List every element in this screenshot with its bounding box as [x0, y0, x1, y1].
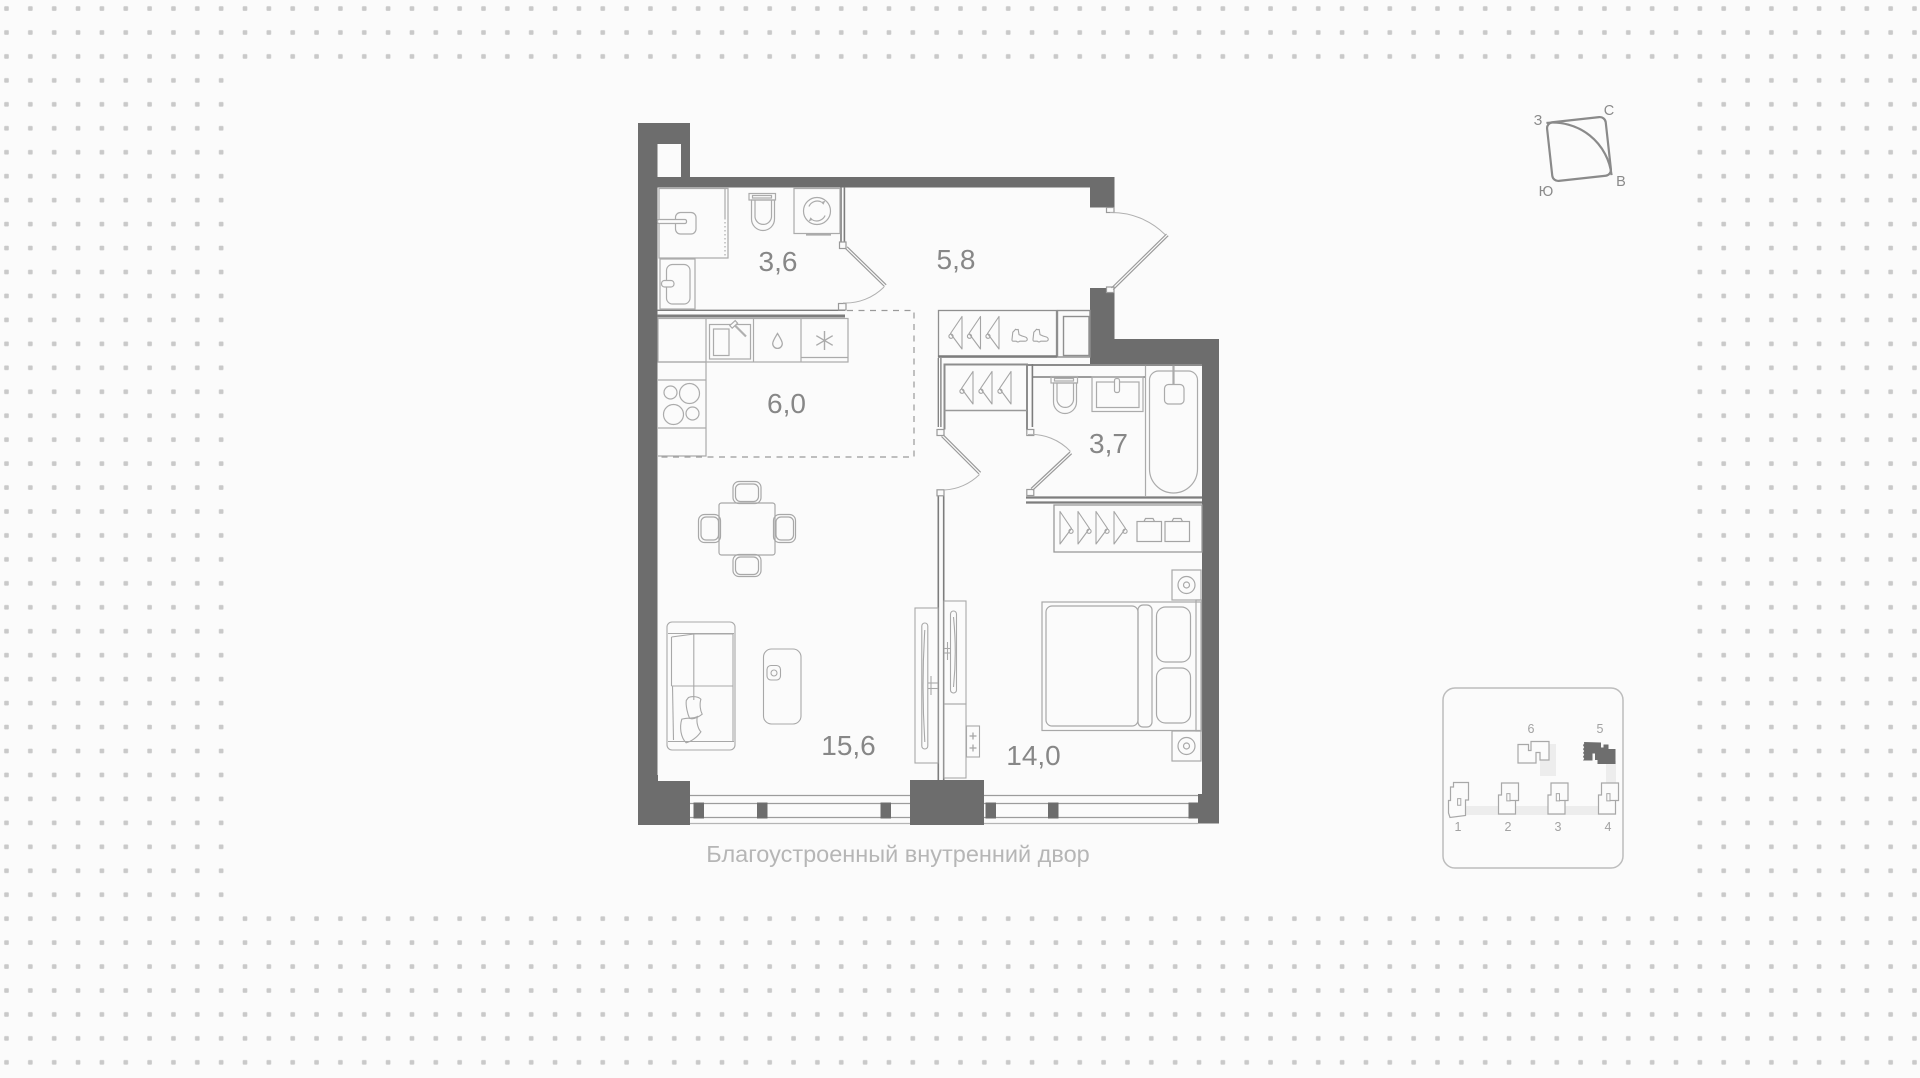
- svg-text:Благоустроенный внутренний дво: Благоустроенный внутренний двор: [706, 841, 1089, 867]
- svg-text:15,6: 15,6: [821, 730, 876, 761]
- svg-text:3: 3: [1555, 820, 1562, 834]
- svg-text:14,0: 14,0: [1006, 740, 1061, 771]
- svg-text:Ю: Ю: [1539, 184, 1554, 200]
- svg-text:В: В: [1616, 174, 1626, 190]
- svg-text:6: 6: [1528, 722, 1535, 736]
- svg-text:2: 2: [1505, 820, 1512, 834]
- svg-text:6,0: 6,0: [767, 388, 806, 419]
- svg-text:3,7: 3,7: [1089, 428, 1128, 459]
- svg-text:С: С: [1604, 103, 1614, 119]
- svg-text:З: З: [1534, 113, 1543, 129]
- svg-text:1: 1: [1455, 820, 1462, 834]
- svg-text:3,6: 3,6: [759, 246, 798, 277]
- svg-text:5,8: 5,8: [937, 244, 976, 275]
- svg-text:5: 5: [1597, 722, 1604, 736]
- svg-text:4: 4: [1605, 820, 1612, 834]
